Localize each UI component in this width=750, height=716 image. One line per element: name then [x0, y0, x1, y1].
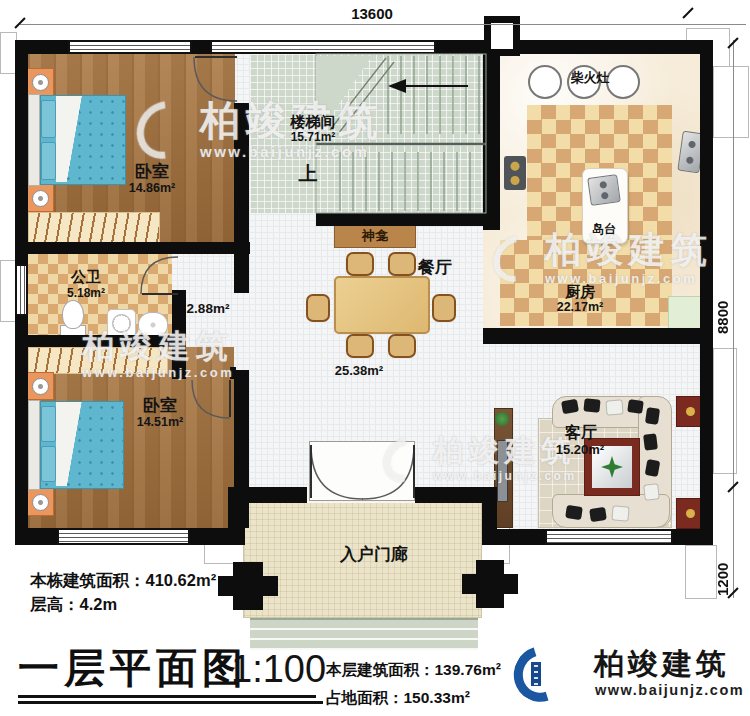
wall-bathroom-top	[15, 242, 250, 254]
dim-tick	[682, 7, 693, 18]
building-area-line: 本栋建筑面积：410.62m²	[30, 570, 216, 592]
building-area-value: 410.62m²	[146, 571, 217, 589]
footprint-label: 占地面积：	[326, 689, 404, 706]
dim-line-top	[20, 24, 746, 25]
shrine: 神龛	[334, 224, 416, 248]
wall-stair-kitchen	[483, 54, 500, 230]
window-bedroom2	[57, 528, 190, 545]
floor-area-label: 本层建筑面积：	[326, 661, 435, 678]
scale-label: 1:100	[231, 648, 326, 691]
sofa-cushion	[589, 507, 607, 522]
wardrobe	[28, 347, 168, 374]
bed-pillow	[41, 142, 56, 180]
footprint-line: 占地面积：150.33m²	[326, 688, 470, 709]
wall-right	[700, 40, 713, 543]
exterior-pier	[685, 545, 717, 599]
floor-area-line: 本层建筑面积：139.76m²	[326, 660, 501, 681]
porch-label: 入户门廊	[334, 546, 414, 564]
entry-double-door[interactable]	[309, 441, 415, 501]
bedroom2-area: 14.51m²	[132, 416, 188, 429]
porch-column	[476, 560, 504, 608]
title-underline	[18, 701, 323, 704]
sofa-cushion	[645, 407, 660, 425]
stairwell-area: 15.71m²	[284, 131, 342, 144]
wood-stove-burner	[528, 65, 562, 99]
bathroom-label: 公卫	[64, 269, 108, 285]
hall-area: 2.88m²	[184, 302, 232, 316]
nightstand-lamp	[26, 372, 54, 400]
bed-blanket	[56, 402, 90, 486]
dining-table	[334, 276, 430, 334]
footprint-value: 150.33m²	[404, 689, 470, 706]
gas-stove	[504, 156, 526, 190]
bed-blanket	[56, 96, 90, 182]
island-label: 岛台	[584, 223, 624, 236]
floor-height-label: 层高：	[30, 595, 80, 613]
bed-pillow	[41, 446, 56, 482]
floor-area-value: 139.76m²	[435, 661, 501, 678]
wardrobe	[28, 212, 160, 244]
brand-site: www.baijunjz.com	[595, 682, 744, 698]
dim-top-label: 13600	[330, 5, 414, 22]
sofa-cushion	[565, 505, 583, 520]
kitchen-area: 22.17m²	[550, 301, 610, 314]
window-living	[545, 529, 673, 545]
brand-logo-building-icon	[538, 648, 566, 684]
sofa-cushion	[643, 433, 658, 450]
dining-chair	[432, 294, 456, 322]
sofa-cushion	[611, 505, 629, 521]
stairwell-label: 楼梯间	[282, 114, 344, 130]
sofa-cushion	[645, 459, 661, 477]
dining-chair	[346, 334, 374, 358]
shrine-label: 神龛	[335, 225, 415, 246]
bedroom2-label: 卧室	[138, 397, 182, 415]
wall-kitchen-bottom	[483, 328, 713, 344]
exterior-window-sill	[713, 66, 749, 138]
bed-pillow	[41, 100, 56, 138]
dining-chair	[388, 334, 416, 358]
living-area: 15.20m²	[550, 443, 610, 457]
kitchen-counter	[668, 296, 702, 330]
sofa-cushion	[605, 399, 623, 415]
page-title: 一层平面图	[18, 641, 248, 696]
wall-stair-bottom	[316, 213, 486, 226]
kitchen-label: 厨房	[554, 284, 606, 300]
nightstand-lamp	[26, 184, 54, 212]
bed-headboard	[28, 94, 40, 186]
tv-icon	[497, 440, 508, 502]
sofa-cushion	[561, 399, 579, 415]
island-sink	[587, 174, 621, 206]
floor-height-value: 4.2m	[80, 595, 118, 613]
bedroom1-area: 14.86m²	[117, 182, 187, 195]
wall-porch-right	[482, 487, 497, 545]
brand-logo-building2-icon	[531, 662, 541, 686]
chimney	[484, 16, 520, 56]
washing-machine	[107, 309, 136, 338]
bed-headboard	[28, 400, 40, 490]
bathroom-area: 5.18m²	[61, 287, 111, 300]
dim-right-main-label: 8800	[714, 270, 731, 334]
entry-steps	[250, 618, 478, 650]
toilet-bowl	[62, 300, 84, 329]
dim-tick	[14, 17, 25, 28]
dining-area: 25.38m²	[330, 364, 388, 378]
nightstand-lamp	[26, 488, 54, 516]
plant-icon	[495, 412, 509, 426]
dining-chair	[306, 294, 330, 322]
nightstand-lamp	[26, 68, 54, 96]
dining-chair	[346, 252, 374, 276]
floor-plan-canvas: 13600 8800 1200 神龛	[0, 0, 750, 716]
stair-up-label: 上	[296, 164, 320, 184]
window-stairwell	[210, 40, 436, 54]
building-area-label: 本栋建筑面积：	[30, 571, 146, 589]
brand-name: 柏竣建筑	[594, 644, 730, 685]
bed-pillow	[41, 406, 56, 442]
floor-height-line: 层高：4.2m	[30, 594, 117, 616]
bedroom1-label: 卧室	[119, 163, 185, 181]
wall-bedroom1-right	[234, 103, 249, 293]
sofa-cushion	[627, 399, 644, 414]
title-underline	[18, 695, 316, 698]
sofa-cushion	[643, 483, 660, 500]
wood-stove-label: 柴火灶	[561, 71, 619, 85]
living-label: 客厅	[558, 425, 604, 442]
wall-bathroom-bottom	[15, 335, 186, 347]
dim-right-porch-label: 1200	[714, 544, 731, 596]
wall-hall-bottom	[172, 367, 186, 379]
dining-label: 餐厅	[412, 259, 458, 277]
porch-column	[233, 562, 263, 610]
dim-line-right	[733, 40, 734, 598]
window-bathroom	[15, 264, 28, 316]
sofa-cushion	[583, 398, 600, 413]
wall-bedroom2-right	[234, 370, 249, 528]
window-bedroom1	[68, 40, 192, 54]
